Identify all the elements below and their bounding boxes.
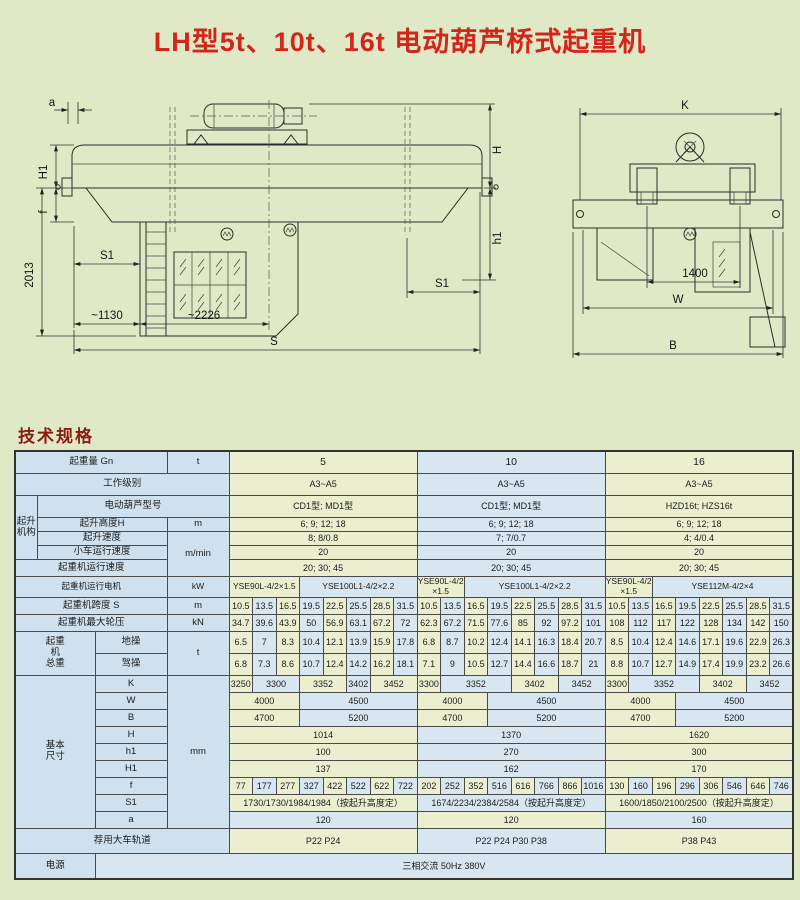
spec-value-cell: 10.4 xyxy=(629,632,653,654)
spec-value-cell: 14.4 xyxy=(511,654,535,676)
spec-value-cell: 19.5 xyxy=(488,598,512,615)
unit-capacity: t xyxy=(167,451,229,474)
spec-value-cell: 196 xyxy=(652,778,676,795)
spec-value-cell: 3300 xyxy=(605,676,629,693)
label-dim-W: W xyxy=(95,693,167,710)
crane-front-view-drawing: a H1 f 2013 S1 ~1130 ~2226 S S1 H xyxy=(22,92,527,372)
capacity-16t: 16 xyxy=(605,451,793,474)
spec-value-cell: 122 xyxy=(676,615,700,632)
duty-5t: A3~A5 xyxy=(229,474,417,496)
spec-value-cell: YSE90L-4/2×1.5 xyxy=(229,577,300,598)
spec-value-cell: 3402 xyxy=(347,676,371,693)
spec-value-cell: 50 xyxy=(300,615,324,632)
spec-value-cell: 28.5 xyxy=(746,598,770,615)
spec-value-cell: 4700 xyxy=(417,710,488,727)
rail-5t: P22 P24 xyxy=(229,829,417,854)
girder-and-cab-section xyxy=(597,228,785,347)
spec-value-cell: 8.6 xyxy=(276,654,300,676)
spec-value-cell: 31.5 xyxy=(770,598,794,615)
hoist-model-10t: CD1型; MD1型 xyxy=(417,496,605,518)
label-hoist-model: 电动葫芦型号 xyxy=(37,496,229,518)
hoist-model-16t: HZD16t; HZS16t xyxy=(605,496,793,518)
spec-value-cell: 16.2 xyxy=(370,654,394,676)
spec-value-cell: 13.5 xyxy=(253,598,277,615)
spec-value-cell: 4700 xyxy=(229,710,300,727)
dimension-lines: a H1 f 2013 S1 ~1130 ~2226 S S1 H xyxy=(24,97,504,354)
spec-value-cell: 4500 xyxy=(488,693,606,710)
spec-value-cell: 516 xyxy=(488,778,512,795)
spec-value-cell: 92 xyxy=(535,615,559,632)
lift-height-5t: 6; 9; 12; 18 xyxy=(229,518,417,532)
spec-value-cell: 142 xyxy=(746,615,770,632)
spec-value-cell: 3452 xyxy=(558,676,605,693)
section-heading: 技术规格 xyxy=(18,422,94,447)
spec-value-cell: 296 xyxy=(676,778,700,795)
trolley-speed-16t: 20 xyxy=(605,546,793,560)
spec-value-cell: 12.4 xyxy=(488,632,512,654)
capacity-5t: 5 xyxy=(229,451,417,474)
spec-value-cell: 23.2 xyxy=(746,654,770,676)
row-hoist-model: 起升 机构 电动葫芦型号 CD1型; MD1型 CD1型; MD1型 HZD16… xyxy=(15,496,793,518)
spec-value-cell: 4500 xyxy=(300,693,418,710)
dim-h1-16t: 300 xyxy=(605,744,793,761)
label-dim-S1: S1 xyxy=(95,795,167,812)
section-centerlines xyxy=(170,100,410,332)
spec-value-cell: 67.2 xyxy=(370,615,394,632)
spec-value-cell: 112 xyxy=(629,615,653,632)
spec-value-cell: 22.5 xyxy=(699,598,723,615)
row-dim-h1: h1 100 270 300 xyxy=(15,744,793,761)
spec-value-cell: 3402 xyxy=(699,676,746,693)
crane-speed-16t: 20; 30; 45 xyxy=(605,560,793,577)
spec-value-cell: 6.8 xyxy=(417,632,441,654)
dim-label-B: B xyxy=(669,340,677,352)
spec-value-cell: 7.3 xyxy=(253,654,277,676)
spec-value-cell: 3452 xyxy=(370,676,417,693)
dim-S1-10t: 1674/2234/2384/2584（按起升高度定） xyxy=(417,795,605,812)
capacity-10t: 10 xyxy=(417,451,605,474)
label-dim-H: H xyxy=(95,727,167,744)
spec-value-cell: 866 xyxy=(558,778,582,795)
spec-value-cell: 12.7 xyxy=(488,654,512,676)
spec-value-cell: 22.5 xyxy=(323,598,347,615)
spec-value-cell: 56.9 xyxy=(323,615,347,632)
spec-value-cell: 6.8 xyxy=(229,654,253,676)
spec-value-cell: 108 xyxy=(605,615,629,632)
label-trolley-speed: 小车运行速度 xyxy=(37,546,167,560)
lift-speed-5t: 8; 8/0.8 xyxy=(229,532,417,546)
spec-value-cell: YSE100L1-4/2×2.2 xyxy=(300,577,418,598)
row-power: 电源 三相交流 50Hz 380V xyxy=(15,854,793,880)
spec-value-cell: 327 xyxy=(300,778,324,795)
dimension-lines: K 1400 W B xyxy=(573,100,783,358)
spec-value-cell: 16.6 xyxy=(535,654,559,676)
spec-value-cell: 4000 xyxy=(417,693,488,710)
spec-value-cell: 26.6 xyxy=(770,654,794,676)
spec-value-cell: 16.5 xyxy=(464,598,488,615)
spec-value-cell: 746 xyxy=(770,778,794,795)
lift-speed-10t: 7; 7/0.7 xyxy=(417,532,605,546)
dim-label-H1: H1 xyxy=(38,165,50,180)
unit-wheel-load: kN xyxy=(167,615,229,632)
spec-value-cell: 277 xyxy=(276,778,300,795)
label-wheel-load: 起重机最大轮压 xyxy=(15,615,167,632)
row-weight-cab: 驾操 6.87.38.610.712.414.216.218.17.1910.5… xyxy=(15,654,793,676)
spec-value-cell: 117 xyxy=(652,615,676,632)
spec-value-cell: 31.5 xyxy=(394,598,418,615)
spec-value-cell: 13.5 xyxy=(629,598,653,615)
spec-value-cell: 10.5 xyxy=(229,598,253,615)
spec-value-cell: 25.5 xyxy=(723,598,747,615)
row-dim-a: a 120 120 160 xyxy=(15,812,793,829)
spec-value-cell: 6.5 xyxy=(229,632,253,654)
hoist-unit xyxy=(676,133,704,162)
row-dim-H: H 1014 1370 1620 xyxy=(15,727,793,744)
spec-value-cell: 20.7 xyxy=(582,632,606,654)
spec-value-cell: YSE100L1-4/2×2.2 xyxy=(464,577,605,598)
dim-a-10t: 120 xyxy=(417,812,605,829)
spec-value-cell: 252 xyxy=(441,778,465,795)
spec-value-cell: 19.5 xyxy=(676,598,700,615)
spec-value-cell: 8.7 xyxy=(441,632,465,654)
spec-value-cell: 63.1 xyxy=(347,615,371,632)
dim-label-2226: ~2226 xyxy=(188,310,220,322)
unit-crane-motor: kW xyxy=(167,577,229,598)
label-dim-f: f xyxy=(95,778,167,795)
spec-value-cell: 8.5 xyxy=(605,632,629,654)
spec-value-cell: 25.5 xyxy=(347,598,371,615)
label-lift-speed: 起升速度 xyxy=(37,532,167,546)
row-capacity: 起重量 Gn t 5 10 16 xyxy=(15,451,793,474)
trolley-speed-10t: 20 xyxy=(417,546,605,560)
spec-value-cell: 31.5 xyxy=(582,598,606,615)
spec-value-cell: 17.8 xyxy=(394,632,418,654)
spec-value-cell: 3452 xyxy=(746,676,793,693)
dim-label-S: S xyxy=(270,336,278,348)
unit-speeds: m/min xyxy=(167,532,229,577)
row-dim-S1: S1 1730/1730/1984/1984（按起升高度定） 1674/2234… xyxy=(15,795,793,812)
group-basic-dimensions: 基本 尺寸 xyxy=(15,676,95,829)
hoist-trolley xyxy=(187,104,317,144)
label-cab-operated: 驾操 xyxy=(95,654,167,676)
spec-value-cell: 4000 xyxy=(605,693,676,710)
label-dim-H1: H1 xyxy=(95,761,167,778)
spec-value-cell: 3402 xyxy=(511,676,558,693)
label-crane-motor: 起重机运行电机 xyxy=(15,577,167,598)
dim-label-f: f xyxy=(38,210,50,214)
spec-value-cell: 3352 xyxy=(441,676,512,693)
label-dim-B: B xyxy=(95,710,167,727)
duty-16t: A3~A5 xyxy=(605,474,793,496)
unit-lift-height: m xyxy=(167,518,229,532)
label-span: 起重机跨度 S xyxy=(15,598,167,615)
label-capacity: 起重量 Gn xyxy=(15,451,167,474)
dim-H-16t: 1620 xyxy=(605,727,793,744)
dim-a-5t: 120 xyxy=(229,812,417,829)
spec-value-cell: 39.6 xyxy=(253,615,277,632)
spec-value-cell: 3352 xyxy=(629,676,700,693)
spec-value-cell: 14.2 xyxy=(347,654,371,676)
dim-H-5t: 1014 xyxy=(229,727,417,744)
spec-value-cell: 522 xyxy=(347,778,371,795)
row-crane-motor: 起重机运行电机 kW YSE90L-4/2×1.5YSE100L1-4/2×2.… xyxy=(15,577,793,598)
spec-value-cell: 7 xyxy=(253,632,277,654)
spec-value-cell: 422 xyxy=(323,778,347,795)
dim-S1-16t: 1600/1850/2100/2500（按起升高度定） xyxy=(605,795,793,812)
spec-value-cell: 5200 xyxy=(488,710,606,727)
spec-value-cell: 128 xyxy=(699,615,723,632)
spec-value-cell: 19.5 xyxy=(300,598,324,615)
spec-value-cell: 62.3 xyxy=(417,615,441,632)
rail-10t: P22 P24 P30 P38 xyxy=(417,829,605,854)
spec-value-cell: 71.5 xyxy=(464,615,488,632)
row-dim-K: 基本 尺寸 K mm 32503300335234023452330033523… xyxy=(15,676,793,693)
spec-value-cell: 646 xyxy=(746,778,770,795)
crane-speed-5t: 20; 30; 45 xyxy=(229,560,417,577)
spec-value-cell: 13.5 xyxy=(441,598,465,615)
dim-H1-5t: 137 xyxy=(229,761,417,778)
row-dim-B: B 470052004700520047005200 xyxy=(15,710,793,727)
spec-value-cell: 77 xyxy=(229,778,253,795)
spec-value-cell: 8.3 xyxy=(276,632,300,654)
row-weight-ground: 起重 机 总重 地操 t 6.578.310.412.113.915.917.8… xyxy=(15,632,793,654)
row-lift-speed: 起升速度 m/min 8; 8/0.8 7; 7/0.7 4; 4/0.4 xyxy=(15,532,793,546)
power-value: 三相交流 50Hz 380V xyxy=(95,854,793,880)
spec-value-cell: 150 xyxy=(770,615,794,632)
dim-h1-10t: 270 xyxy=(417,744,605,761)
spec-value-cell: 22.5 xyxy=(511,598,535,615)
lift-speed-16t: 4; 4/0.4 xyxy=(605,532,793,546)
row-trolley-speed: 小车运行速度 20 20 20 xyxy=(15,546,793,560)
spec-value-cell: 26.3 xyxy=(770,632,794,654)
label-dim-a: a xyxy=(95,812,167,829)
dim-label-H: H xyxy=(492,146,504,154)
spec-value-cell: 10.7 xyxy=(629,654,653,676)
page-title: LH型5t、10t、16t 电动葫芦桥式起重机 xyxy=(0,20,800,59)
row-dim-H1: H1 137 162 170 xyxy=(15,761,793,778)
spec-value-cell: 4700 xyxy=(605,710,676,727)
spec-value-cell: 10.5 xyxy=(417,598,441,615)
spec-value-cell: 10.2 xyxy=(464,632,488,654)
row-rail: 荐用大车轨道 P22 P24 P22 P24 P30 P38 P38 P43 xyxy=(15,829,793,854)
trolley-speed-5t: 20 xyxy=(229,546,417,560)
spec-value-cell: 12.1 xyxy=(323,632,347,654)
motor-symbols xyxy=(221,224,296,240)
duty-10t: A3~A5 xyxy=(417,474,605,496)
spec-value-cell: 15.9 xyxy=(370,632,394,654)
dim-label-S1-right: S1 xyxy=(435,278,449,290)
spec-value-cell: 616 xyxy=(511,778,535,795)
spec-value-cell: YSE90L-4/2 ×1.5 xyxy=(417,577,464,598)
unit-span: m xyxy=(167,598,229,615)
dim-S1-5t: 1730/1730/1984/1984（按起升高度定） xyxy=(229,795,417,812)
hoist-model-5t: CD1型; MD1型 xyxy=(229,496,417,518)
row-crane-speed: 起重机运行速度 20; 30; 45 20; 30; 45 20; 30; 45 xyxy=(15,560,793,577)
spec-value-cell: 1016 xyxy=(582,778,606,795)
spec-value-cell: 18.1 xyxy=(394,654,418,676)
spec-value-cell: 101 xyxy=(582,615,606,632)
spec-value-cell: 14.9 xyxy=(676,654,700,676)
spec-value-cell: 16.5 xyxy=(652,598,676,615)
spec-value-cell: 19.9 xyxy=(723,654,747,676)
spec-value-cell: 10.5 xyxy=(464,654,488,676)
spec-value-cell: 14.1 xyxy=(511,632,535,654)
spec-value-cell: 21 xyxy=(582,654,606,676)
label-dim-K: K xyxy=(95,676,167,693)
spec-value-cell: 43.9 xyxy=(276,615,300,632)
spec-value-cell: 12.4 xyxy=(323,654,347,676)
bridge-cross-beam xyxy=(573,200,783,228)
crane-speed-10t: 20; 30; 45 xyxy=(417,560,605,577)
dim-H1-10t: 162 xyxy=(417,761,605,778)
spec-value-cell: 202 xyxy=(417,778,441,795)
label-dim-h1: h1 xyxy=(95,744,167,761)
spec-value-cell: 5200 xyxy=(676,710,794,727)
dim-label-a: a xyxy=(49,97,56,109)
dim-h1-5t: 100 xyxy=(229,744,417,761)
spec-value-cell: 134 xyxy=(723,615,747,632)
spec-value-cell: 34.7 xyxy=(229,615,253,632)
trolley-frame xyxy=(630,164,755,204)
dim-a-16t: 160 xyxy=(605,812,793,829)
row-lift-height: 起升高度H m 6; 9; 12; 18 6; 9; 12; 18 6; 9; … xyxy=(15,518,793,532)
dim-label-h1: h1 xyxy=(492,232,504,245)
spec-value-cell: 160 xyxy=(629,778,653,795)
spec-value-cell: 10.7 xyxy=(300,654,324,676)
lift-height-10t: 6; 9; 12; 18 xyxy=(417,518,605,532)
row-duty-class: 工作级别 A3~A5 A3~A5 A3~A5 xyxy=(15,474,793,496)
dim-label-2013: 2013 xyxy=(24,262,36,288)
dim-H-10t: 1370 xyxy=(417,727,605,744)
dim-label-W: W xyxy=(673,294,684,306)
spec-value-cell: 546 xyxy=(723,778,747,795)
bridge-girder xyxy=(56,145,498,222)
label-lift-height: 起升高度H xyxy=(37,518,167,532)
spec-value-cell: 3300 xyxy=(253,676,300,693)
unit-dimensions: mm xyxy=(167,676,229,829)
spec-value-cell: 28.5 xyxy=(370,598,394,615)
spec-value-cell: 16.3 xyxy=(535,632,559,654)
spec-value-cell: 10.4 xyxy=(300,632,324,654)
label-duty-class: 工作级别 xyxy=(15,474,229,496)
dim-label-K: K xyxy=(681,100,689,112)
label-power: 电源 xyxy=(15,854,95,880)
dim-H1-16t: 170 xyxy=(605,761,793,778)
spec-value-cell: 4500 xyxy=(676,693,794,710)
lift-height-16t: 6; 9; 12; 18 xyxy=(605,518,793,532)
spec-value-cell: 16.5 xyxy=(276,598,300,615)
spec-value-cell: 19.6 xyxy=(723,632,747,654)
spec-value-cell: 7.1 xyxy=(417,654,441,676)
rail-16t: P38 P43 xyxy=(605,829,793,854)
row-wheel-load: 起重机最大轮压 kN 34.739.643.95056.963.167.2726… xyxy=(15,615,793,632)
spec-value-cell: 13.9 xyxy=(347,632,371,654)
spec-value-cell: 3300 xyxy=(417,676,441,693)
spec-value-cell: 766 xyxy=(535,778,559,795)
spec-value-cell: 97.2 xyxy=(558,615,582,632)
spec-value-cell: 14.6 xyxy=(676,632,700,654)
spec-value-cell: YSE112M-4/2×4 xyxy=(652,577,793,598)
spec-value-cell: 22.9 xyxy=(746,632,770,654)
label-ground-operated: 地操 xyxy=(95,632,167,654)
spec-value-cell: 3250 xyxy=(229,676,253,693)
spec-value-cell: 25.5 xyxy=(535,598,559,615)
group-hoist-mechanism: 起升 机构 xyxy=(15,496,37,560)
spec-value-cell: 12.4 xyxy=(652,632,676,654)
row-span: 起重机跨度 S m 10.513.516.519.522.525.528.531… xyxy=(15,598,793,615)
spec-value-cell: 77.6 xyxy=(488,615,512,632)
crane-side-view-drawing: K 1400 W B xyxy=(545,92,795,372)
spec-value-cell: 67.2 xyxy=(441,615,465,632)
dim-label-1400: 1400 xyxy=(682,268,708,280)
spec-value-cell: 3352 xyxy=(300,676,347,693)
spec-value-cell: 72 xyxy=(394,615,418,632)
spec-value-cell: 12.7 xyxy=(652,654,676,676)
spec-value-cell: 722 xyxy=(394,778,418,795)
spec-value-cell: 130 xyxy=(605,778,629,795)
row-dim-f: f 77177277327422522622722202252352516616… xyxy=(15,778,793,795)
spec-value-cell: 28.5 xyxy=(558,598,582,615)
label-rail: 荐用大车轨道 xyxy=(15,829,229,854)
spec-value-cell: 8.8 xyxy=(605,654,629,676)
spec-value-cell: 18.4 xyxy=(558,632,582,654)
spec-value-cell: 10.5 xyxy=(605,598,629,615)
spec-value-cell: 5200 xyxy=(300,710,418,727)
spec-value-cell: YSE90L-4/2 ×1.5 xyxy=(605,577,652,598)
spec-value-cell: 9 xyxy=(441,654,465,676)
label-crane-speed: 起重机运行速度 xyxy=(15,560,167,577)
spec-value-cell: 4000 xyxy=(229,693,300,710)
spec-value-cell: 622 xyxy=(370,778,394,795)
dim-label-S1-left: S1 xyxy=(100,250,114,262)
group-total-weight: 起重 机 总重 xyxy=(15,632,95,676)
spec-value-cell: 17.4 xyxy=(699,654,723,676)
spec-value-cell: 306 xyxy=(699,778,723,795)
spec-value-cell: 352 xyxy=(464,778,488,795)
unit-weight: t xyxy=(167,632,229,676)
spec-value-cell: 18.7 xyxy=(558,654,582,676)
dim-label-1130: ~1130 xyxy=(91,310,122,322)
row-dim-W: W 400045004000450040004500 xyxy=(15,693,793,710)
spec-table: 起重量 Gn t 5 10 16 工作级别 A3~A5 A3~A5 A3~A5 … xyxy=(14,450,794,880)
spec-value-cell: 177 xyxy=(253,778,277,795)
spec-value-cell: 17.1 xyxy=(699,632,723,654)
spec-value-cell: 85 xyxy=(511,615,535,632)
